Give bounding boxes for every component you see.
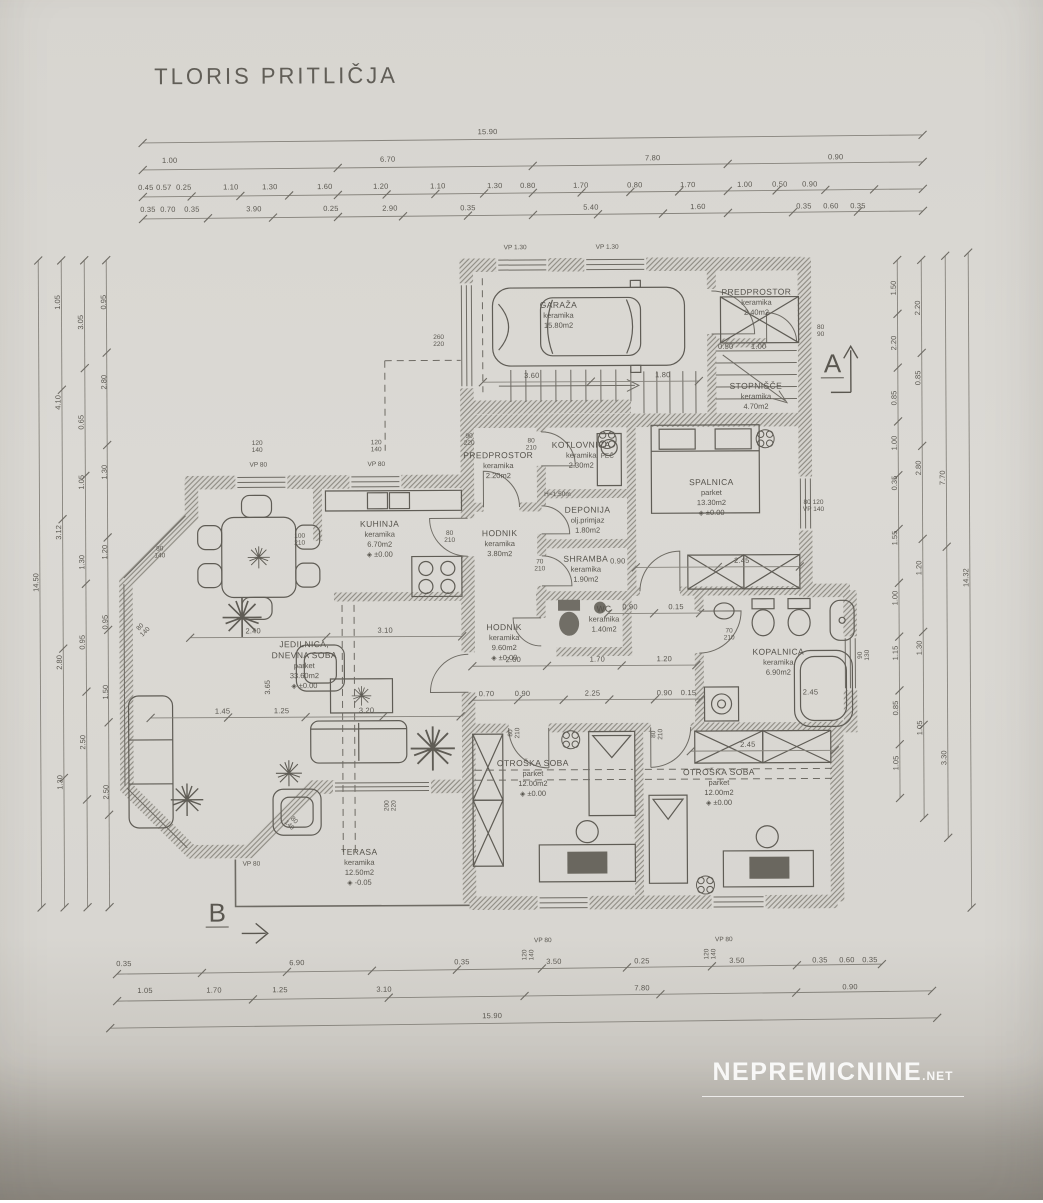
dim-label: 6.70 — [380, 155, 395, 164]
dim-label: 1.00 — [890, 591, 899, 606]
dim-label: 0.35 — [850, 201, 865, 210]
dim-label: 1.45 — [215, 707, 230, 716]
door-mark: 80 210 — [650, 729, 665, 740]
terrace-door-mark: 200 220 — [384, 800, 399, 811]
window-mark: VP 80 — [367, 461, 385, 469]
dim-label: 0.95 — [101, 615, 110, 630]
window-mark: 120 140 — [252, 440, 263, 455]
dim-label: 1.30 — [262, 182, 277, 191]
furnace-label: PEČ — [601, 453, 614, 461]
dim-label: 2.80 — [914, 461, 923, 476]
dim-label: 2.50 — [101, 785, 110, 800]
dim-label: 1.00 — [162, 156, 177, 165]
dim-label: 0.90 — [622, 602, 637, 611]
room-label-predprostor1: PREDPROSTORkeramika2.40m2 — [721, 287, 791, 318]
dim-label: 0.35 — [460, 203, 475, 212]
dim-label: 0.95 — [78, 635, 87, 650]
room-label-jedilnica: JEDILNICA, DNEVNA SOBAparket33.60m2±0.00 — [272, 639, 338, 691]
dim-label: 0.35 — [890, 476, 899, 491]
window-mark: VP 1.30 — [596, 244, 619, 252]
dim-label: 0.95 — [99, 295, 108, 310]
dim-label: 1.70 — [206, 986, 221, 995]
dim-label: 0.80 — [627, 180, 642, 189]
window-mark: VP 80 — [249, 462, 267, 470]
dim-label: 1.05 — [891, 756, 900, 771]
car-icon — [492, 280, 684, 373]
dim-mark: 80 90 — [817, 324, 824, 339]
dim-label: 2.20 — [913, 301, 922, 316]
window-mark: VP 80 — [715, 936, 733, 944]
dim-label: 3.50 — [729, 956, 744, 965]
dim-label: 0.90 — [515, 689, 530, 698]
room-label-spalnica: SPALNICAparket13.30m2±0.00 — [689, 477, 734, 518]
dim-label: 2.45 — [734, 556, 749, 565]
dim-label: 0.50 — [718, 342, 733, 351]
dim-label: 0.65 — [77, 415, 86, 430]
room-label-otroska-1: OTROŠKA SOBAparket12.00m2±0.00 — [497, 758, 569, 799]
dim-label: 7.70 — [938, 470, 947, 485]
room-label-deponija: DEPONIJAolj.primjaz1.80m2 — [565, 505, 611, 536]
section-marker-a: A — [821, 350, 844, 378]
dim-label: 7.80 — [645, 153, 660, 162]
dim-label: 0.90 — [828, 152, 843, 161]
dim-label: 0.90 — [802, 179, 817, 188]
door-mark: 80 210 — [444, 530, 455, 545]
dim-label: 1.80 — [655, 370, 670, 379]
dim-label: 1.15 — [891, 646, 900, 661]
dim-label: 1.70 — [590, 655, 605, 664]
dim-label: 3.10 — [377, 626, 392, 635]
door-mark: 70 210 — [534, 558, 545, 573]
dim-label: 1.05 — [915, 721, 924, 736]
height-label: H=1.50m — [544, 491, 571, 499]
room-label-garaza: GARAŽAkeramika15.80m2 — [540, 300, 578, 331]
window-mark: 120 140 — [703, 949, 718, 960]
dim-label: 0.35 — [812, 955, 827, 964]
page-title: TLORIS PRITLIČJA — [154, 62, 398, 90]
watermark-tld: .NET — [922, 1069, 953, 1083]
room-label-kopalnica: KOPALNICAkeramika6.90m2 — [752, 647, 804, 678]
window-mark: 80 140 — [154, 545, 165, 560]
dim-label: 0.15 — [681, 688, 696, 697]
dim-label: 0.60 — [839, 955, 854, 964]
room-label-kuhinja: KUHINJAkeramika6.70m2±0.00 — [360, 519, 399, 560]
dim-label: 1.00 — [890, 436, 899, 451]
dim-label: 1.30 — [77, 555, 86, 570]
dim-label: 3.60 — [524, 371, 539, 380]
dim-label: 1.20 — [914, 561, 923, 576]
dim-label: 0.90 — [657, 688, 672, 697]
dim-label: 0.85 — [889, 391, 898, 406]
dim-label: 0.35 — [140, 205, 155, 214]
dim-label: 0.35 — [862, 955, 877, 964]
dim-label: 0.35 — [796, 201, 811, 210]
dim-label: 0.50 — [772, 180, 787, 189]
dim-label: 0.70 — [479, 689, 494, 698]
room-label-stopnisce: STOPNIŠČEkeramika4.70m2 — [730, 381, 783, 412]
windows — [122, 256, 858, 912]
dim-label: 3.65 — [263, 680, 272, 695]
dim-label: 0.80 — [520, 181, 535, 190]
dim-label: 0.90 — [610, 556, 625, 565]
door-mark: 80 210 — [526, 437, 537, 452]
dim-label: 1.25 — [272, 985, 287, 994]
room-label-terasa: TERASAkeramika12.50m2-0.05 — [341, 847, 378, 888]
dim-label: 14.50 — [31, 573, 40, 592]
dim-label: 2.90 — [382, 204, 397, 213]
dim-label: 0.57 — [156, 183, 171, 192]
dim-label: 0.45 — [138, 183, 153, 192]
dim-label: 1.25 — [274, 706, 289, 715]
dim-label: 3.30 — [939, 750, 948, 765]
dim-label: 1.55 — [890, 531, 899, 546]
room-label-otroska-2: OTROŠKA SOBAparket12.00m2±0.00 — [683, 767, 755, 808]
dim-label: 0.35 — [454, 957, 469, 966]
dim-label: 2.80 — [99, 375, 108, 390]
section-marker-b: B — [206, 900, 229, 928]
dim-label: 0.35 — [184, 205, 199, 214]
window-mark: 120 140 — [371, 439, 382, 454]
dim-label: 1.20 — [657, 654, 672, 663]
dim-label: 0.15 — [668, 602, 683, 611]
window-mark: VP 80 — [243, 861, 261, 869]
monitors — [567, 851, 789, 880]
dim-label: 2.45 — [803, 687, 818, 696]
dim-label: 0.85 — [891, 701, 900, 716]
dim-label: 0.25 — [176, 183, 191, 192]
dim-label: 3.12 — [54, 525, 63, 540]
dim-label: 3.20 — [359, 706, 374, 715]
dim-label: 1.30 — [55, 775, 64, 790]
dim-label: 1.70 — [573, 181, 588, 190]
plan-wrapper: TLORIS PRITLIČJA A B GARAŽAkeramika15.80… — [0, 0, 1043, 1203]
dim-label: 3.90 — [246, 204, 261, 213]
dim-label: 2.25 — [585, 689, 600, 698]
door-mark: 90 220 — [464, 433, 475, 448]
dim-label: 0.35 — [116, 959, 131, 968]
dim-label: 1.05 — [137, 986, 152, 995]
dim-label: 14.32 — [961, 568, 970, 587]
dim-label: 1.60 — [317, 182, 332, 191]
dim-label: 1.05 — [53, 295, 62, 310]
window-mark: VP 1.30 — [504, 244, 527, 252]
window-mark: 120 140 — [521, 949, 536, 960]
room-label-predprostor2: PREDPROSTORkeramika2.20m2 — [463, 450, 533, 481]
window-mark: VP 80 — [534, 937, 552, 945]
door-mark: 80 210 — [507, 728, 522, 739]
dim-label: 2.45 — [740, 740, 755, 749]
dim-label: 1.00 — [751, 342, 766, 351]
garage-door-mark: 260 220 — [433, 334, 444, 349]
dim-label: 5.40 — [583, 203, 598, 212]
dim-label: 3.10 — [376, 985, 391, 994]
dim-label: 2.40 — [245, 626, 260, 635]
dim-label: 1.50 — [889, 281, 898, 296]
dim-label: 1.70 — [680, 180, 695, 189]
dim-label: 4.10 — [53, 395, 62, 410]
room-label-hodnik-mali: HODNIKkeramika3.80m2 — [482, 528, 518, 559]
dim-label: 0.25 — [634, 956, 649, 965]
dim-label: 1.20 — [373, 182, 388, 191]
dim-label: 0.70 — [160, 205, 175, 214]
dim-label: 2.20 — [889, 336, 898, 351]
dim-label: 15.90 — [478, 127, 498, 136]
room-label-wc: WCkeramika1.40m2 — [589, 603, 620, 634]
watermark-underline — [702, 1096, 964, 1097]
dim-label: 0.60 — [823, 201, 838, 210]
dim-label: 7.80 — [634, 983, 649, 992]
dim-label: 1.30 — [100, 465, 109, 480]
dim-label: 1.60 — [690, 202, 705, 211]
watermark: NEPREMICNINE.NET — [702, 1058, 964, 1097]
dim-label: 6.90 — [289, 958, 304, 967]
dim-label: 0.25 — [323, 204, 338, 213]
dim-label: 2.50 — [78, 735, 87, 750]
dim-label: 1.10 — [430, 181, 445, 190]
dim-label: 2.80 — [55, 655, 64, 670]
window-mark: 80 120 VP 140 — [803, 499, 824, 514]
dim-label: 1.20 — [100, 545, 109, 560]
dim-label: 15.90 — [482, 1011, 502, 1020]
dim-label: 1.30 — [915, 641, 924, 656]
dim-label: 0.90 — [842, 982, 857, 991]
door-mark: 70 210 — [724, 627, 735, 642]
dim-label: 3.50 — [546, 957, 561, 966]
dim-label: 1.50 — [101, 685, 110, 700]
dim-label: 3.05 — [76, 315, 85, 330]
door-mark: 100 210 — [294, 533, 305, 548]
room-label-shramba: SHRAMBAkeramika1.90m2 — [563, 554, 608, 585]
dim-label: 1.10 — [223, 182, 238, 191]
scanned-floor-plan-page: TLORIS PRITLIČJA A B GARAŽAkeramika15.80… — [0, 0, 1043, 1200]
exterior-walls — [124, 257, 851, 905]
dim-label: 2.00 — [506, 655, 521, 664]
dim-label: 1.05 — [77, 475, 86, 490]
window-mark: 90 130 — [857, 650, 872, 661]
dim-label: 1.00 — [737, 180, 752, 189]
dim-label: 1.30 — [487, 181, 502, 190]
watermark-brand: NEPREMICNINE — [712, 1058, 922, 1086]
dim-label: 0.85 — [913, 371, 922, 386]
